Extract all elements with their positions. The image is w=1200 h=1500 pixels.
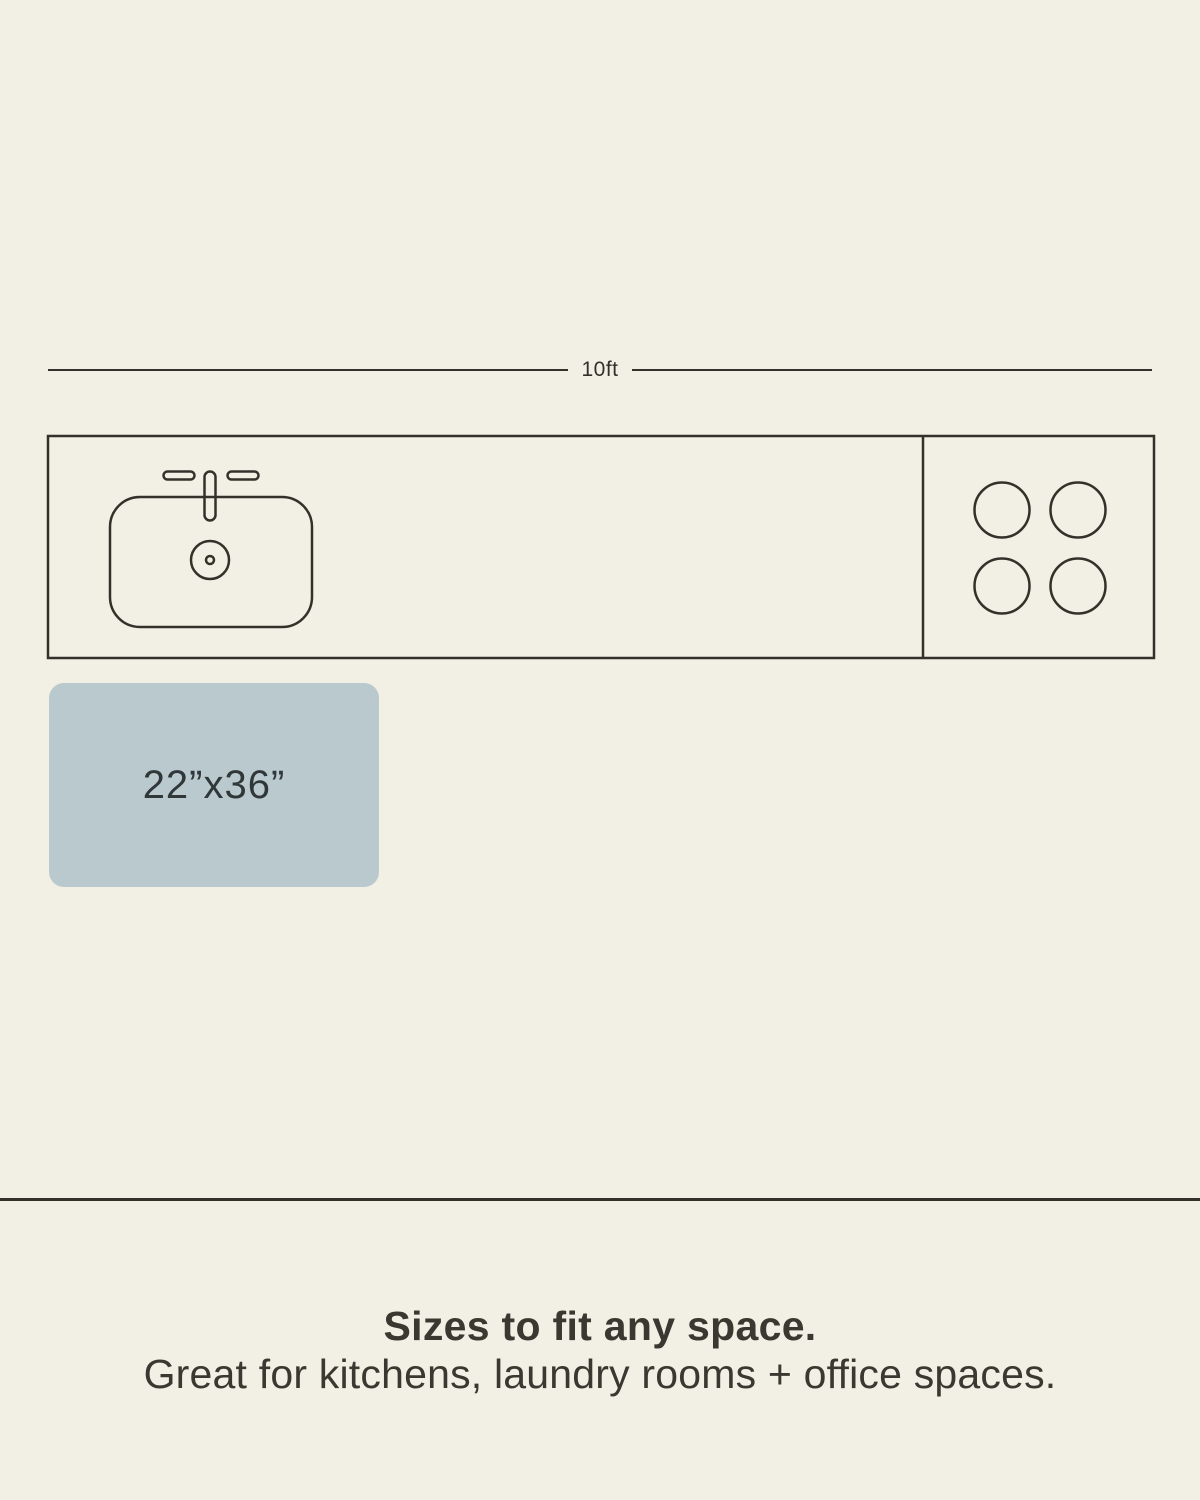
counter-outline bbox=[48, 436, 1154, 658]
measurement-line-right bbox=[632, 369, 1152, 371]
burner-top-right-icon bbox=[1051, 483, 1106, 538]
measurement-row: 10ft bbox=[48, 357, 1152, 383]
burner-bottom-right-icon bbox=[1051, 559, 1106, 614]
caption-subtitle: Great for kitchens, laundry rooms + offi… bbox=[0, 1350, 1200, 1398]
mat-size-label: 22”x36” bbox=[143, 763, 286, 808]
caption-block: Sizes to fit any space. Great for kitche… bbox=[0, 1302, 1200, 1398]
burner-top-left-icon bbox=[975, 483, 1030, 538]
mat-swatch-22x36: 22”x36” bbox=[49, 683, 379, 887]
measurement-line-left bbox=[48, 369, 568, 371]
caption-title: Sizes to fit any space. bbox=[0, 1302, 1200, 1350]
sink-drain-center-icon bbox=[206, 556, 214, 564]
faucet-spout-icon bbox=[205, 472, 216, 521]
sink-drain-icon bbox=[191, 541, 229, 579]
measurement-label: 10ft bbox=[568, 358, 631, 382]
sink-basin-icon bbox=[110, 497, 312, 627]
faucet-handle-left-icon bbox=[164, 472, 195, 480]
section-divider bbox=[0, 1198, 1200, 1201]
burner-bottom-left-icon bbox=[975, 559, 1030, 614]
infographic-canvas: 10ft 22”x36” Sizes to fit any space. bbox=[0, 0, 1200, 1500]
faucet-handle-right-icon bbox=[228, 472, 259, 480]
